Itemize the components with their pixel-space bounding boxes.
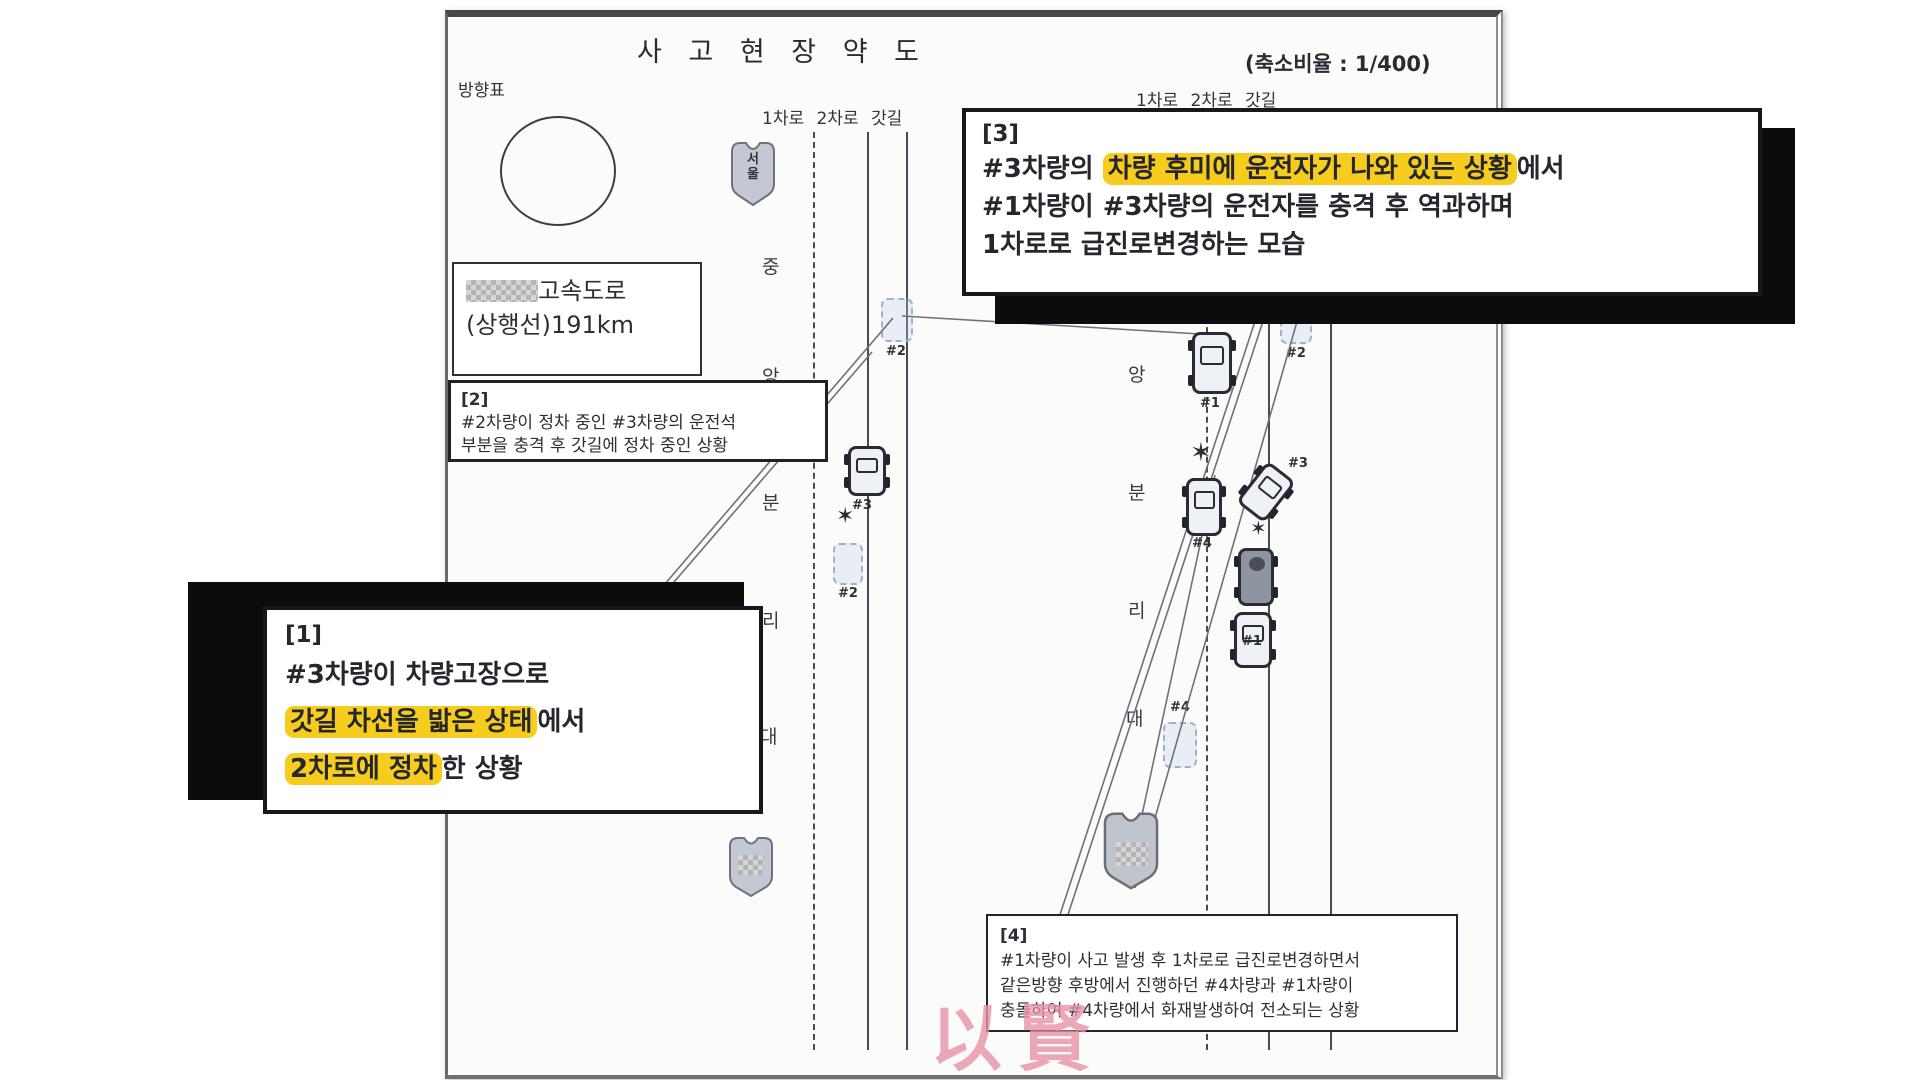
callout-text: 1차로로 급진로변경하는 모습	[982, 226, 1742, 264]
callout-box-1: [1] #3차량이 차량고장으로 갓길 차선을 밟은 상태에서 2차로에 정차한…	[263, 606, 763, 814]
highlighted-text: 2차로에 정차	[285, 753, 442, 785]
left-road-lane-labels: 1차로 2차로 갓길	[762, 104, 902, 129]
location-line-1: 고속도로	[466, 274, 688, 308]
watermark-text: 以賢	[930, 980, 1106, 1080]
car-3	[848, 446, 886, 496]
callout-text: #2차량이 정차 중인 #3차량의 운전석	[461, 412, 815, 435]
destination-shield-redacted-icon	[726, 835, 776, 899]
truck-1	[1192, 332, 1232, 394]
callout-tag: [4]	[1000, 924, 1444, 949]
location-box: 고속도로 (상행선)191km	[452, 262, 702, 376]
car-label: #3	[852, 498, 872, 513]
callout-tag: [3]	[982, 118, 1742, 150]
car-label: #1	[1200, 396, 1220, 411]
callout-text: #1차량이 #3차량의 운전자를 충격 후 역과하며	[982, 188, 1742, 226]
compass-label: 방향표	[458, 76, 505, 101]
seoul-shield-text: 서 울	[728, 152, 778, 182]
scale-note: (축소비율 : 1/400)	[1245, 48, 1431, 78]
redacted-blur	[738, 855, 764, 875]
callout-text: 2차로에 정차한 상황	[285, 746, 741, 793]
collision-burst-icon: ✶	[836, 506, 854, 528]
car-4	[1186, 478, 1222, 536]
collision-burst-icon: ✶	[1250, 518, 1267, 538]
location-line-2: (상행선)191km	[466, 308, 688, 342]
highlighted-text: 갓길 차선을 밟은 상태	[285, 706, 537, 738]
compass-circle-icon	[500, 116, 616, 226]
redacted-blur	[466, 280, 538, 302]
seoul-shield-icon: 서 울	[728, 140, 778, 208]
callout-box-3: [3] #3차량의 차량 후미에 운전자가 나와 있는 상황에서 #1차량이 #…	[962, 108, 1762, 296]
highlighted-text: 차량 후미에 운전자가 나와 있는 상황	[1103, 153, 1517, 185]
callout-tag: [1]	[285, 618, 741, 652]
callout-text: #3차량의 차량 후미에 운전자가 나와 있는 상황에서	[982, 150, 1742, 188]
callout-text: 갓길 차선을 밟은 상태에서	[285, 699, 741, 746]
car-label: #4	[1192, 536, 1212, 551]
callout-text: #3차량이 차량고장으로	[285, 652, 741, 699]
accident-diagram-screenshot: 사 고 현 장 약 도 (축소비율 : 1/400) 방향표 1차로 2차로 갓…	[0, 0, 1920, 1080]
burnt-car	[1238, 548, 1274, 606]
callout-box-2: [2] #2차량이 정차 중인 #3차량의 운전석 부분을 충격 후 갓길에 정…	[448, 380, 828, 462]
car-label: #1	[1242, 634, 1262, 649]
callout-text: #1차량이 사고 발생 후 1차로로 급진로변경하면서	[1000, 949, 1444, 974]
destination-shield-redacted-icon	[1100, 810, 1162, 892]
car-label: #3	[1288, 456, 1308, 471]
fire-damage-mark	[1249, 557, 1265, 571]
callout-tag: [2]	[461, 389, 815, 412]
callout-text: 부분을 충격 후 갓길에 정차 중인 상황	[461, 435, 815, 458]
redacted-blur	[1116, 842, 1148, 866]
page-title: 사 고 현 장 약 도	[637, 30, 928, 69]
collision-burst-icon: ✶	[1190, 440, 1212, 466]
